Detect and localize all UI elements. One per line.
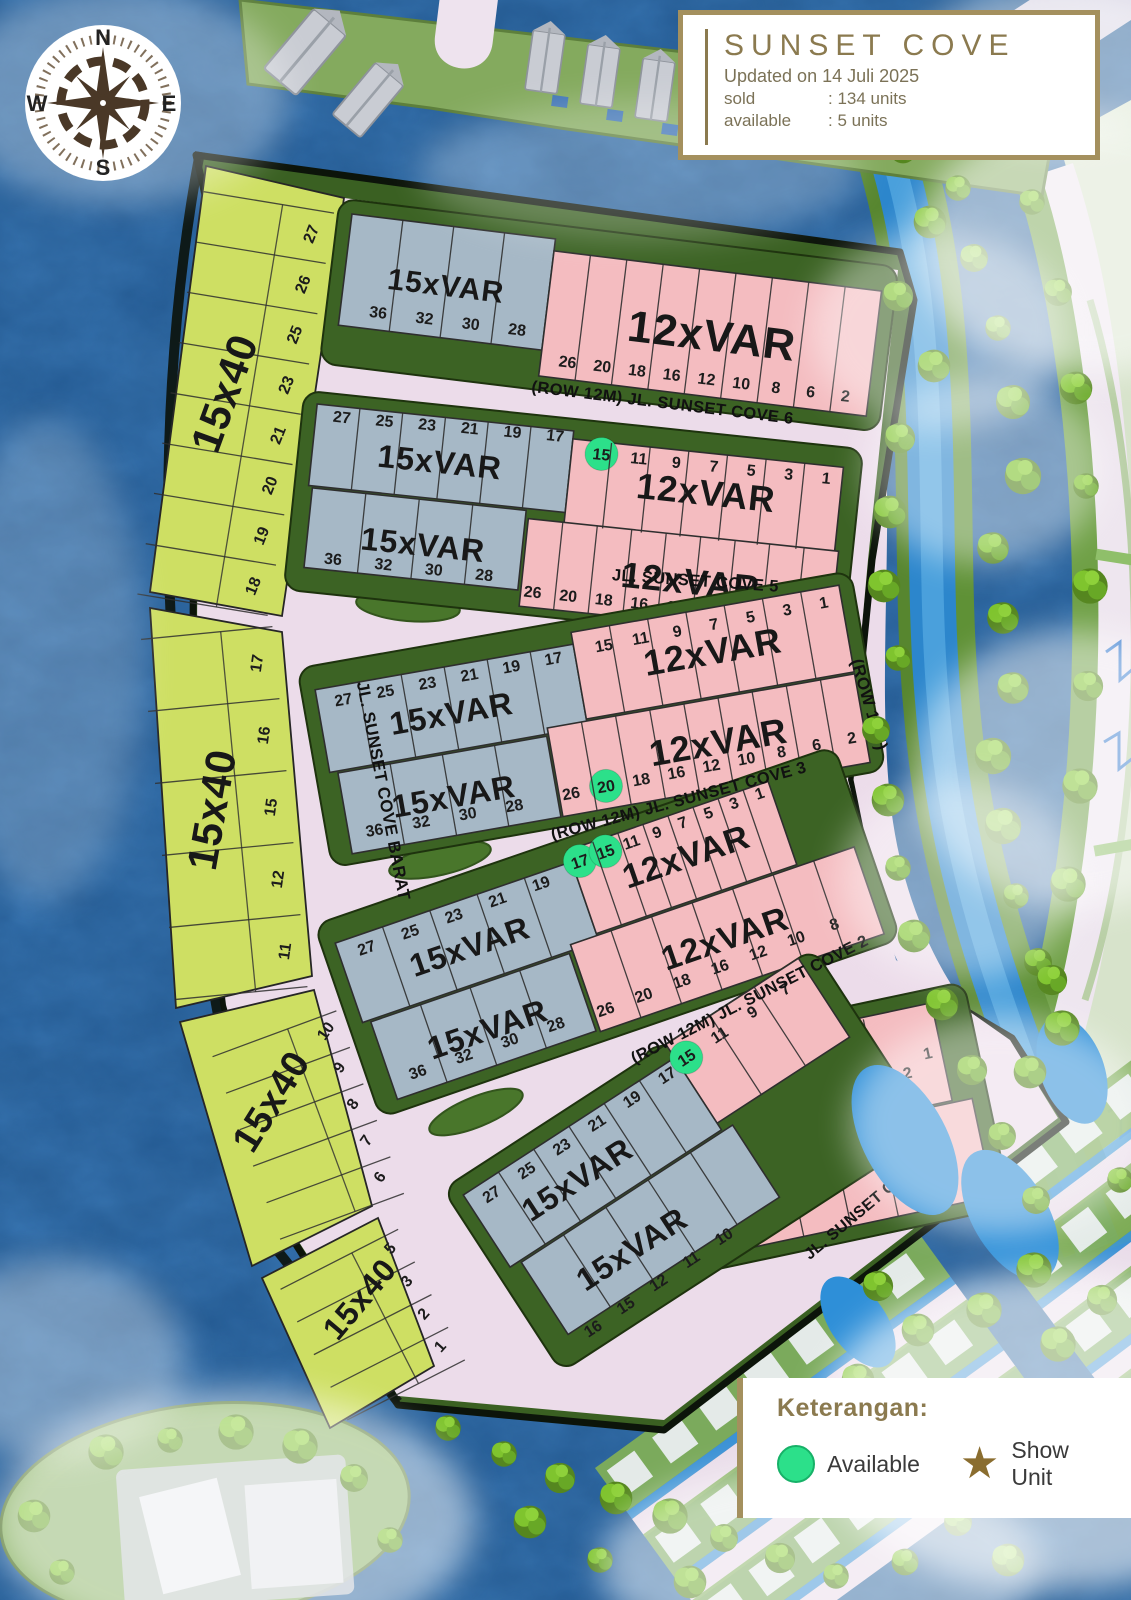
compass-w: W	[27, 91, 48, 116]
available-value: : 5 units	[828, 111, 888, 131]
legend-available-label: Available	[827, 1451, 920, 1478]
lot-number: 27	[332, 409, 352, 428]
sold-row: sold : 134 units	[724, 89, 1077, 109]
tree-icon	[1072, 568, 1107, 603]
lot-number: 26	[558, 353, 578, 372]
lot-number: 26	[561, 784, 582, 804]
legend-show-unit-label: Show Unit	[1011, 1437, 1111, 1491]
lot-number: 18	[627, 362, 647, 381]
tree-icon	[491, 1441, 517, 1467]
lot-number: 25	[375, 682, 396, 702]
tree-icon	[1037, 965, 1067, 995]
lot-number: 30	[461, 315, 481, 334]
lot-number: 28	[474, 566, 494, 585]
show-unit-star-icon: ★	[960, 1449, 999, 1479]
lot-number: 36	[323, 551, 343, 570]
tree-icon	[545, 1463, 575, 1493]
available-circle-icon	[777, 1445, 815, 1483]
lot-number: 26	[523, 584, 543, 603]
tree-icon	[514, 1506, 547, 1539]
tree-icon	[885, 645, 911, 671]
lot-number: 18	[631, 771, 652, 791]
compass-n: N	[95, 25, 111, 50]
lot-number: 20	[558, 587, 578, 606]
lot-number: 18	[594, 591, 614, 610]
project-title: SUNSET COVE	[724, 29, 1077, 62]
lot-number: 16	[255, 725, 274, 745]
lot-number: 12	[697, 370, 717, 389]
lot-number: 36	[368, 304, 388, 323]
lot-number: 17	[543, 649, 564, 669]
legend: Keterangan: Available ★ Show Unit	[737, 1378, 1131, 1518]
lot-number: 19	[503, 423, 523, 442]
lot-number: 27	[333, 691, 354, 711]
lot-number: 16	[662, 366, 682, 385]
tree-icon	[868, 570, 901, 603]
tree-icon	[435, 1415, 461, 1441]
fog-cloud	[840, 780, 1080, 980]
lot-number: 15	[262, 797, 281, 817]
tree-icon	[987, 602, 1019, 634]
tree-icon	[600, 1482, 633, 1515]
lot-number: 23	[417, 674, 438, 694]
lot-number: 15	[592, 446, 612, 465]
site-plan-canvas: 272625232120191817161512111098765321 15x…	[0, 0, 1131, 1600]
lot-number: 20	[592, 358, 612, 377]
lot-number: 32	[415, 310, 435, 329]
available-label: available	[724, 111, 828, 131]
compass-rose: N S W E	[22, 22, 184, 184]
compass-s: S	[96, 155, 111, 180]
compass-e: E	[162, 91, 177, 116]
legend-item-available: Available	[777, 1445, 920, 1483]
lot-number: 21	[460, 420, 480, 439]
lot-number: 20	[596, 777, 617, 797]
available-row: available : 5 units	[724, 111, 1077, 131]
lot-number: 3	[783, 466, 794, 484]
lot-number: 11	[276, 942, 295, 961]
lot-number: 21	[459, 666, 480, 686]
lot-number: 28	[507, 321, 527, 340]
lot-number: 12	[269, 869, 288, 889]
legend-heading: Keterangan:	[777, 1394, 1111, 1423]
legend-item-show-unit: ★ Show Unit	[960, 1437, 1111, 1491]
sold-label: sold	[724, 89, 828, 109]
title-box: SUNSET COVE Updated on 14 Juli 2025 sold…	[678, 10, 1100, 160]
lot-number: 10	[731, 375, 751, 394]
tree-icon	[862, 716, 890, 744]
site-plan-map: 272625232120191817161512111098765321 15x…	[0, 0, 1131, 1600]
lot-number: 19	[501, 658, 522, 678]
updated-date: Updated on 14 Juli 2025	[724, 66, 1077, 87]
lot-number: 17	[545, 427, 565, 446]
tree-icon	[926, 988, 959, 1021]
compass-center	[100, 100, 106, 106]
tree-icon	[863, 1271, 893, 1301]
lot-number: 25	[375, 412, 395, 431]
lot-number: 23	[417, 416, 437, 435]
lot-number: 17	[248, 653, 267, 673]
fog-cloud	[810, 230, 1070, 430]
lot-number: 1	[821, 470, 832, 488]
sold-value: : 134 units	[828, 89, 906, 109]
